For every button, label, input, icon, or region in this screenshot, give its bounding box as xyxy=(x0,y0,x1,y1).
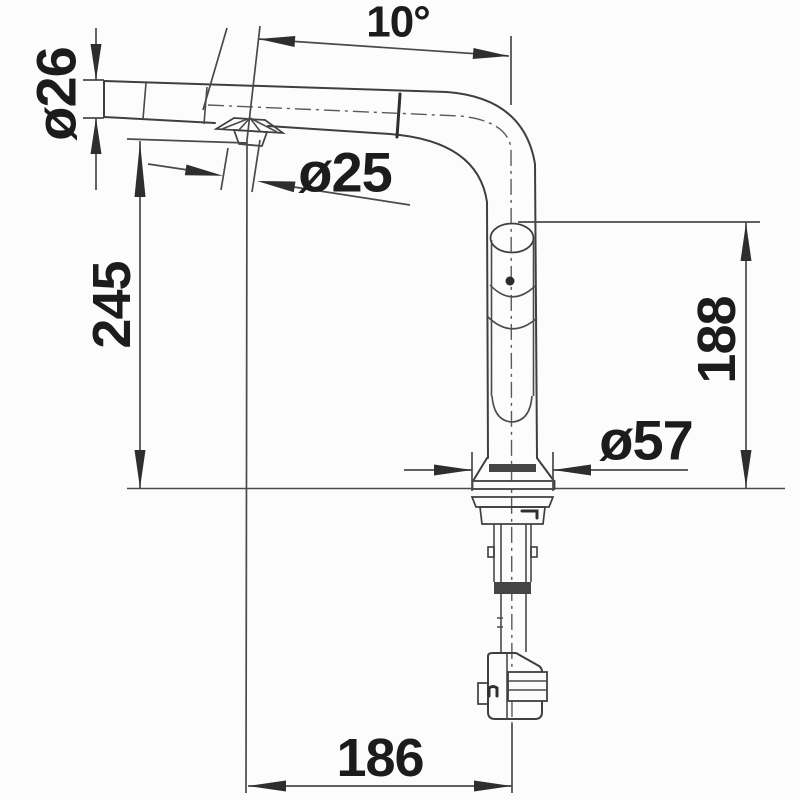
shank-tab-left xyxy=(488,547,494,557)
spout-outer-edge xyxy=(104,81,537,458)
spout-joint-tick-bold xyxy=(397,94,400,137)
mounting-flange-top xyxy=(472,497,553,507)
angle-ext-line-long xyxy=(246,26,260,793)
spray-dia-line-left xyxy=(148,164,188,170)
reach186-arrow-left xyxy=(248,781,286,792)
shank-detail-ticks xyxy=(497,618,503,627)
technical-drawing-canvas: 10° ø26 ø25 245 188 xyxy=(0,0,800,800)
reach186-arrow-right xyxy=(474,781,512,792)
faucet-dimension-drawing: 10° ø26 ø25 245 188 xyxy=(0,0,800,800)
dim-label-spout-angle: 10° xyxy=(366,0,430,46)
dim-label-height-188: 188 xyxy=(687,296,747,383)
cartridge-arc-lower xyxy=(488,317,537,329)
dim-label-spout-diameter: ø26 xyxy=(25,47,88,141)
height245-ext-top xyxy=(127,139,247,143)
angle-arrow-left xyxy=(259,36,296,47)
handle-top-ellipse xyxy=(491,224,534,253)
spray-dia-arrow-left xyxy=(185,165,223,176)
dim-label-base-diameter: ø57 xyxy=(599,409,693,472)
height245-arrow-top xyxy=(135,142,146,197)
dim-label-spray-diameter: ø25 xyxy=(298,141,392,204)
cartridge-arc-upper xyxy=(490,285,535,297)
shank-tab-right xyxy=(531,547,537,557)
angle-ext-line-short xyxy=(203,28,227,110)
dim-height-245: 245 xyxy=(82,139,247,488)
spray-dia-ext-1 xyxy=(221,148,228,190)
base-ring-band xyxy=(489,464,536,472)
dim-label-height-245: 245 xyxy=(82,261,142,348)
dim-spray-diameter: ø25 xyxy=(148,140,410,205)
connector-hex-nut xyxy=(508,672,547,701)
spout-joint-tick-1 xyxy=(143,83,146,119)
base-flange xyxy=(473,458,555,489)
spout-dia-arrow-top xyxy=(91,44,102,80)
flange-notch xyxy=(522,511,537,518)
height245-arrow-bottom xyxy=(135,450,146,488)
connector-tab-left xyxy=(478,683,488,704)
base-dia-arrow-right xyxy=(553,465,591,476)
faucet-outline xyxy=(104,81,537,458)
base-dia-arrow-left xyxy=(434,465,472,476)
dim-base-diameter: ø57 xyxy=(404,409,693,491)
handle-cartridge xyxy=(488,224,537,423)
dim-label-reach-186: 186 xyxy=(336,728,423,788)
mounting-nut xyxy=(494,582,531,594)
dim-reach-186: 186 xyxy=(248,724,512,793)
dim-spout-angle: 10° xyxy=(203,0,511,793)
spray-dia-arrow-right xyxy=(257,181,296,192)
spray-dia-ext-2 xyxy=(252,140,260,192)
connector-clip-mark xyxy=(489,687,497,697)
angle-arrow-right xyxy=(473,48,509,59)
spray-head-outlet xyxy=(234,130,267,146)
inner-tube-sides xyxy=(492,240,534,396)
spout-dia-arrow-bottom xyxy=(91,118,102,154)
height188-arrow-bottom xyxy=(741,450,752,487)
handle-pivot-dot xyxy=(506,277,515,286)
height188-arrow-top xyxy=(741,223,752,261)
spout-inner-edge-left xyxy=(104,117,215,123)
base-plate xyxy=(473,481,555,489)
dim-spout-diameter: ø26 xyxy=(25,28,104,190)
